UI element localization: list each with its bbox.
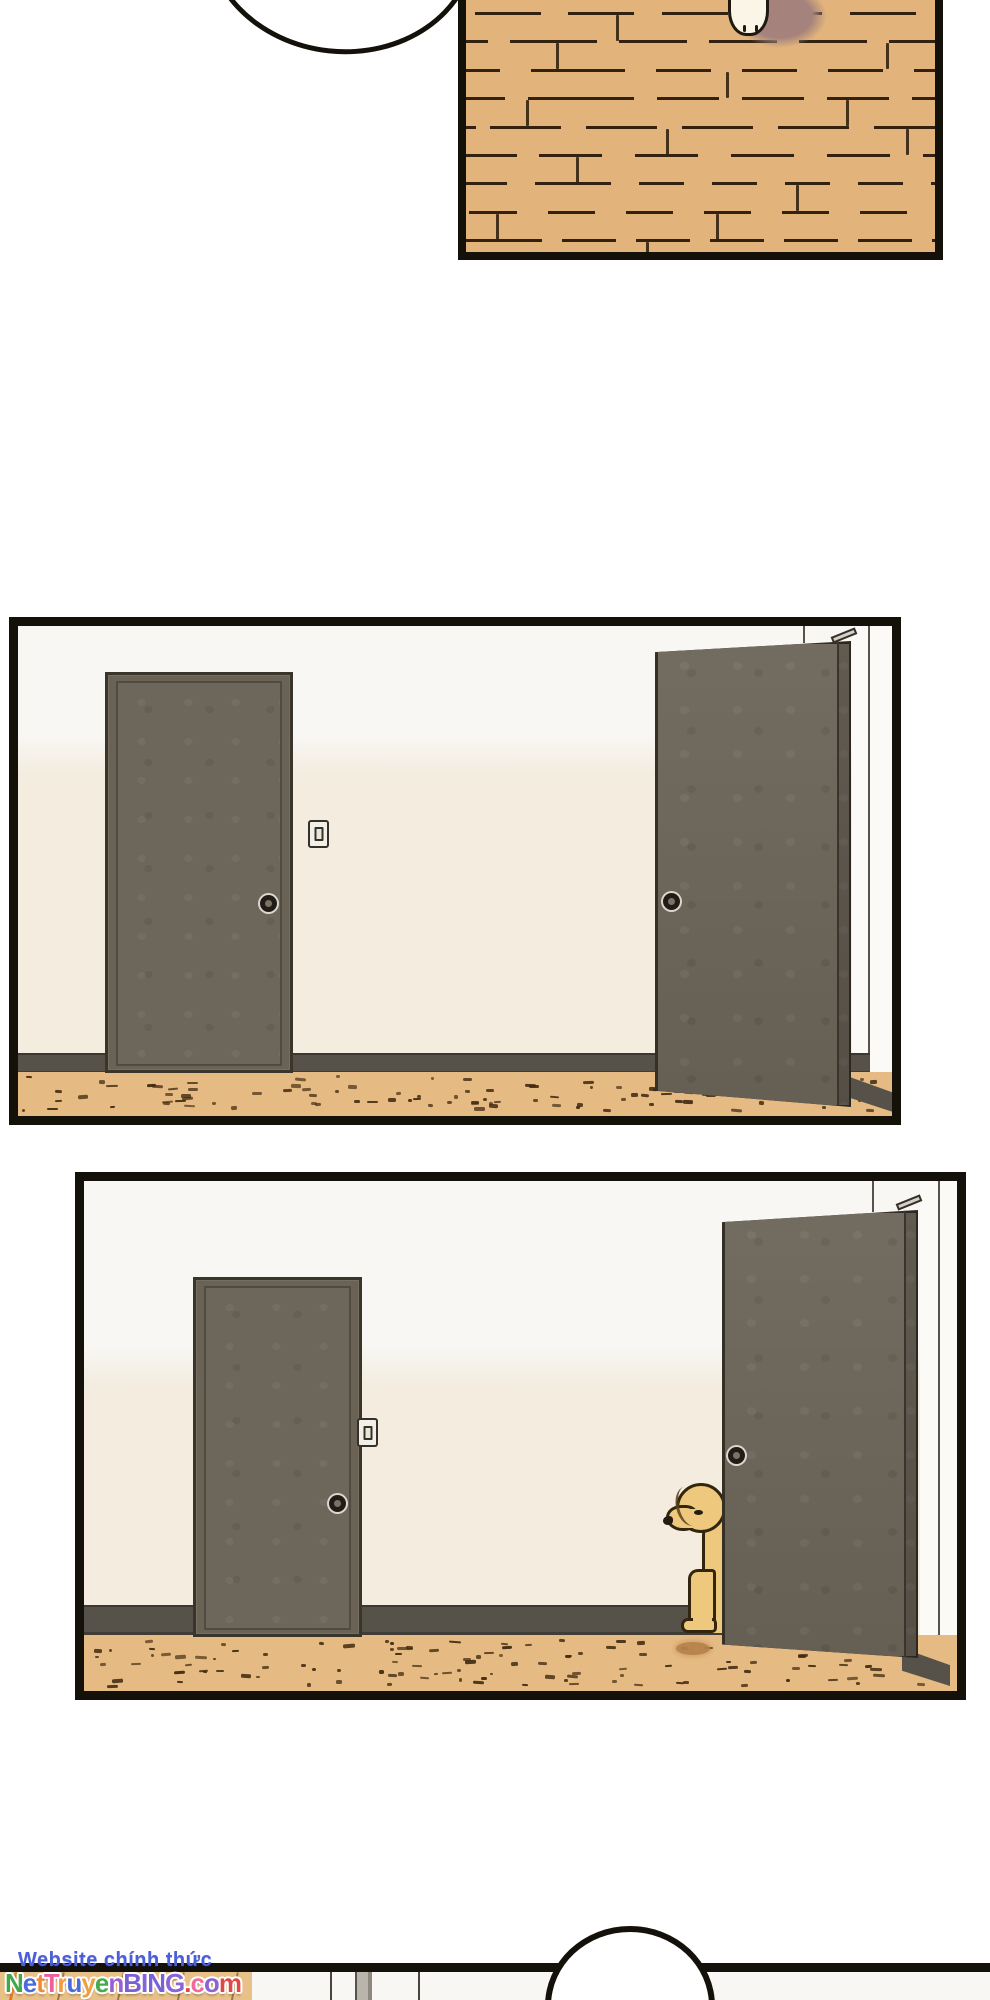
floor-speck — [184, 1105, 195, 1108]
floor-speck — [367, 1101, 378, 1103]
floor-speck — [577, 1103, 583, 1107]
floor-speck — [283, 1089, 292, 1092]
floor-speck — [212, 1102, 216, 1105]
door-knob — [728, 1447, 745, 1464]
floor-speck — [47, 1108, 58, 1110]
floor-speck — [26, 1076, 32, 1079]
plank-joint — [646, 242, 649, 260]
door-face — [658, 644, 849, 1105]
plank-joint — [666, 129, 669, 155]
floor-speck — [168, 1087, 179, 1090]
floor-speck — [187, 1088, 197, 1091]
floor-speck — [388, 1097, 396, 1101]
floor-speck — [525, 1084, 536, 1087]
open-door — [655, 641, 851, 1107]
floor-speck — [252, 1092, 262, 1095]
open-door — [722, 1210, 918, 1658]
wall-corner-line — [418, 1972, 420, 2000]
light-switch — [308, 820, 329, 848]
floor-speck — [309, 1094, 317, 1097]
floor-speck — [465, 1090, 470, 1094]
speech-bubble-bottom — [545, 1926, 715, 2000]
plank-joint — [796, 185, 799, 211]
floor-speck — [550, 1095, 559, 1098]
plank-joint — [526, 100, 529, 126]
plank-joint — [726, 72, 729, 98]
floor-speck — [162, 1102, 169, 1105]
plank-line — [466, 126, 935, 129]
watermark-letter: G — [165, 1968, 184, 1998]
floor-speck — [532, 1098, 537, 1101]
floor-speck — [583, 1081, 594, 1084]
door-leaf — [116, 681, 282, 1066]
floor-speck — [759, 1101, 764, 1105]
door-edge — [904, 1210, 918, 1658]
wood-planks — [466, 0, 935, 252]
floor-speck — [603, 1109, 611, 1113]
door-frame-piece — [355, 1972, 372, 2000]
floor-speck — [78, 1095, 88, 1099]
floor-speck — [482, 1098, 486, 1101]
door-knob — [663, 893, 680, 910]
floor-speck — [590, 1086, 593, 1089]
watermark-letter: e — [95, 1968, 108, 1998]
door-knob — [260, 895, 277, 912]
floor-speck — [866, 1108, 874, 1112]
watermark-letter: c — [190, 1968, 203, 1998]
plank-line — [466, 154, 935, 157]
plank-joint — [886, 43, 889, 69]
floor-speck — [354, 1100, 360, 1103]
watermark-letter: y — [81, 1968, 94, 1998]
plank-line — [466, 211, 935, 214]
floor-speck — [335, 1090, 339, 1094]
floor-speck — [175, 1100, 186, 1102]
plank-line — [466, 40, 935, 43]
floor-speck — [860, 1078, 864, 1081]
puppy-nose — [663, 1516, 673, 1525]
watermark-letter: N — [5, 1968, 23, 1998]
floor-speck — [675, 1100, 684, 1104]
floor-speck — [454, 1095, 458, 1099]
plank-joint — [616, 15, 619, 41]
speech-bubble-top — [194, 0, 489, 68]
watermark-letter: T — [44, 1968, 57, 1998]
light-switch-button — [314, 827, 323, 841]
wall-corner-line — [330, 1972, 332, 2000]
door-edge — [837, 641, 851, 1107]
watermark-letter: m — [219, 1968, 241, 1998]
floor-speck — [649, 1103, 654, 1106]
plank-joint — [556, 43, 559, 69]
plank-line — [466, 182, 935, 185]
floor-speck — [620, 1097, 625, 1100]
floor-speck — [55, 1090, 62, 1093]
plank-joint — [496, 214, 499, 240]
floor-speck — [683, 1100, 693, 1104]
plank-line — [466, 239, 935, 242]
floor-speck — [447, 1101, 452, 1104]
floor-speck — [302, 1087, 311, 1091]
floor-speck — [660, 1093, 671, 1096]
floor-speck — [431, 1076, 434, 1079]
floor-speck — [631, 1093, 638, 1097]
floor-speck — [641, 1094, 649, 1097]
plank-joint — [716, 214, 719, 240]
floor-speck — [494, 1100, 501, 1103]
floor-speck — [105, 1085, 117, 1088]
plank-line — [466, 97, 935, 100]
paw-toe-line — [755, 25, 758, 32]
floor-speck — [616, 1085, 622, 1088]
paw-toe-line — [743, 25, 746, 32]
floor-speck — [822, 1106, 826, 1109]
plank-line — [466, 69, 935, 72]
wall-corner-line — [803, 626, 805, 643]
floor-speck — [408, 1098, 412, 1101]
watermark-letter: r — [57, 1968, 66, 1998]
floor-speck — [348, 1085, 357, 1089]
floor-speck — [489, 1104, 498, 1108]
watermark-letter: B — [123, 1968, 141, 1998]
floor-speck — [55, 1099, 62, 1102]
plank-joint — [906, 129, 909, 155]
plank-joint — [576, 157, 579, 183]
floor-speck — [731, 1108, 743, 1112]
floor-speck — [486, 1089, 494, 1092]
floor-speck — [110, 1106, 115, 1108]
side-wall — [852, 626, 892, 1078]
panel-wood-floor — [458, 0, 943, 260]
plank-joint — [846, 100, 849, 126]
floor-speck — [21, 1109, 24, 1113]
watermark-letter: e — [23, 1968, 36, 1998]
floor-speck — [291, 1084, 301, 1088]
floor-speck — [870, 1080, 877, 1084]
floor-speck — [165, 1093, 173, 1096]
panel-hallway-doors — [9, 617, 901, 1125]
watermark-letter: o — [204, 1968, 219, 1998]
closed-door — [105, 672, 293, 1073]
floor-speck — [336, 1075, 340, 1078]
floor-speck — [463, 1077, 472, 1080]
watermark-letter: t — [36, 1968, 44, 1998]
door-face — [725, 1213, 916, 1656]
floor-speck — [99, 1080, 105, 1084]
leg-paw-seam-patch — [693, 1611, 712, 1623]
panel-hallway-puppy — [75, 1172, 966, 1700]
floor-speck — [395, 1091, 400, 1094]
watermark-site-name: NetTruyenBING.com — [5, 1968, 241, 1999]
watermark-letter: N — [147, 1968, 165, 1998]
floor-speck — [147, 1084, 156, 1088]
floor-speck — [295, 1078, 306, 1082]
watermark-letter: n — [108, 1968, 123, 1998]
floor-speck — [187, 1082, 198, 1084]
comic-page: Website chính thức NetTruyenBING.com — [0, 0, 990, 2000]
plank-line — [466, 12, 935, 15]
puppy-eye — [694, 1510, 703, 1515]
floor-speck — [551, 1103, 560, 1107]
watermark-letter: u — [67, 1968, 82, 1998]
wall-corner-line — [868, 626, 870, 1055]
floor-speck — [181, 1094, 191, 1098]
floor-speck — [231, 1106, 237, 1110]
floor-speck — [474, 1107, 485, 1111]
floor-speck — [428, 1104, 433, 1107]
floor-speck — [315, 1103, 321, 1107]
floor-speck — [412, 1098, 420, 1101]
